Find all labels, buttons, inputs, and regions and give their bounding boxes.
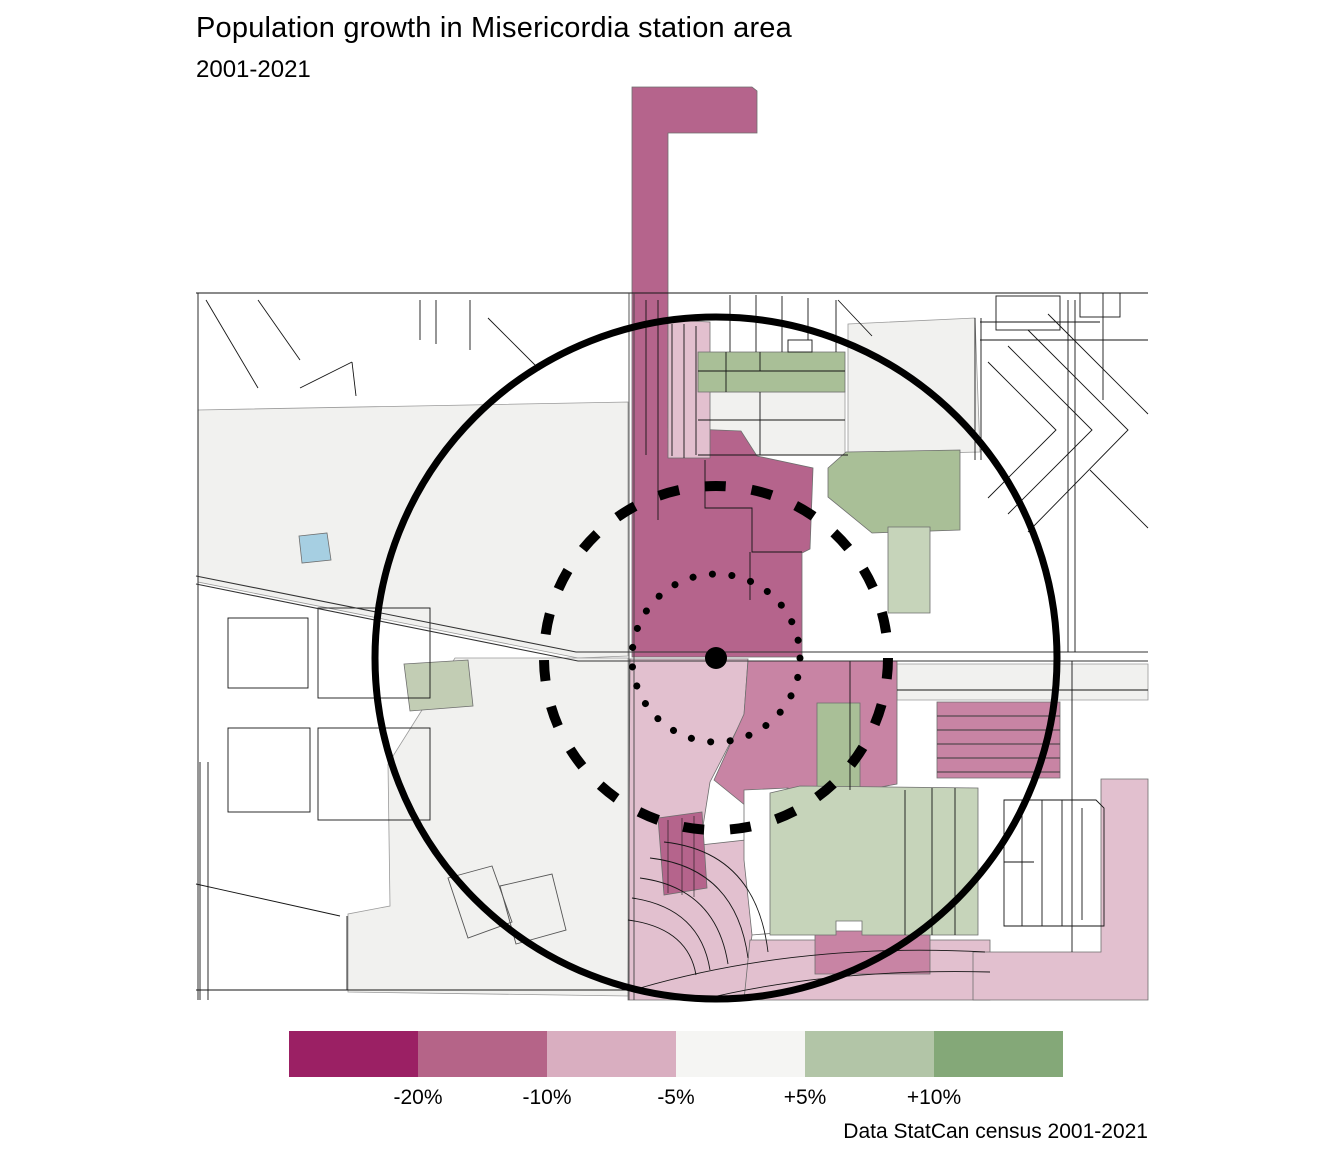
station-marker	[705, 647, 727, 669]
legend-break-label: -10%	[507, 1086, 587, 1110]
parcel-grey-southwest	[348, 658, 628, 996]
figure-population-growth-map: Population growth in Misericordia statio…	[0, 0, 1344, 1152]
tract-green-parcel	[817, 703, 860, 787]
tract-east-L	[973, 779, 1148, 1000]
legend-swatch-decline-10-20pct	[418, 1031, 547, 1077]
legend-swatch-decline-over-20pct	[289, 1031, 418, 1077]
legend-swatch-growth-5-10pct	[805, 1031, 934, 1077]
legend-swatches	[289, 1031, 1063, 1077]
pond	[299, 533, 331, 563]
legend-break-label: -20%	[378, 1086, 458, 1110]
page-title: Population growth in Misericordia statio…	[196, 12, 792, 45]
page-subtitle: 2001-2021	[196, 56, 311, 84]
legend-break-label: -5%	[636, 1086, 716, 1110]
tract-corridor-north	[632, 87, 757, 293]
legend-swatch-decline-5-10pct	[547, 1031, 676, 1077]
parcel-grey-east-band	[897, 664, 1148, 700]
tract-green-bar	[698, 352, 845, 392]
legend-labels: -20%-10%-5%+5%+10%	[289, 1086, 1063, 1114]
legend-swatch-growth-over-10pct	[934, 1031, 1063, 1077]
legend-break-label: +5%	[765, 1086, 845, 1110]
legend-swatch-stable	[676, 1031, 805, 1077]
source-credit: Data StatCan census 2001-2021	[843, 1120, 1148, 1144]
parcel-grey-northeast	[848, 318, 980, 455]
map-canvas	[0, 0, 1344, 1152]
tract-core-decline	[632, 293, 813, 657]
tract-green-west	[404, 660, 473, 711]
tract-green-east	[828, 450, 960, 533]
legend-break-label: +10%	[894, 1086, 974, 1110]
tract-green-strip	[888, 527, 930, 613]
